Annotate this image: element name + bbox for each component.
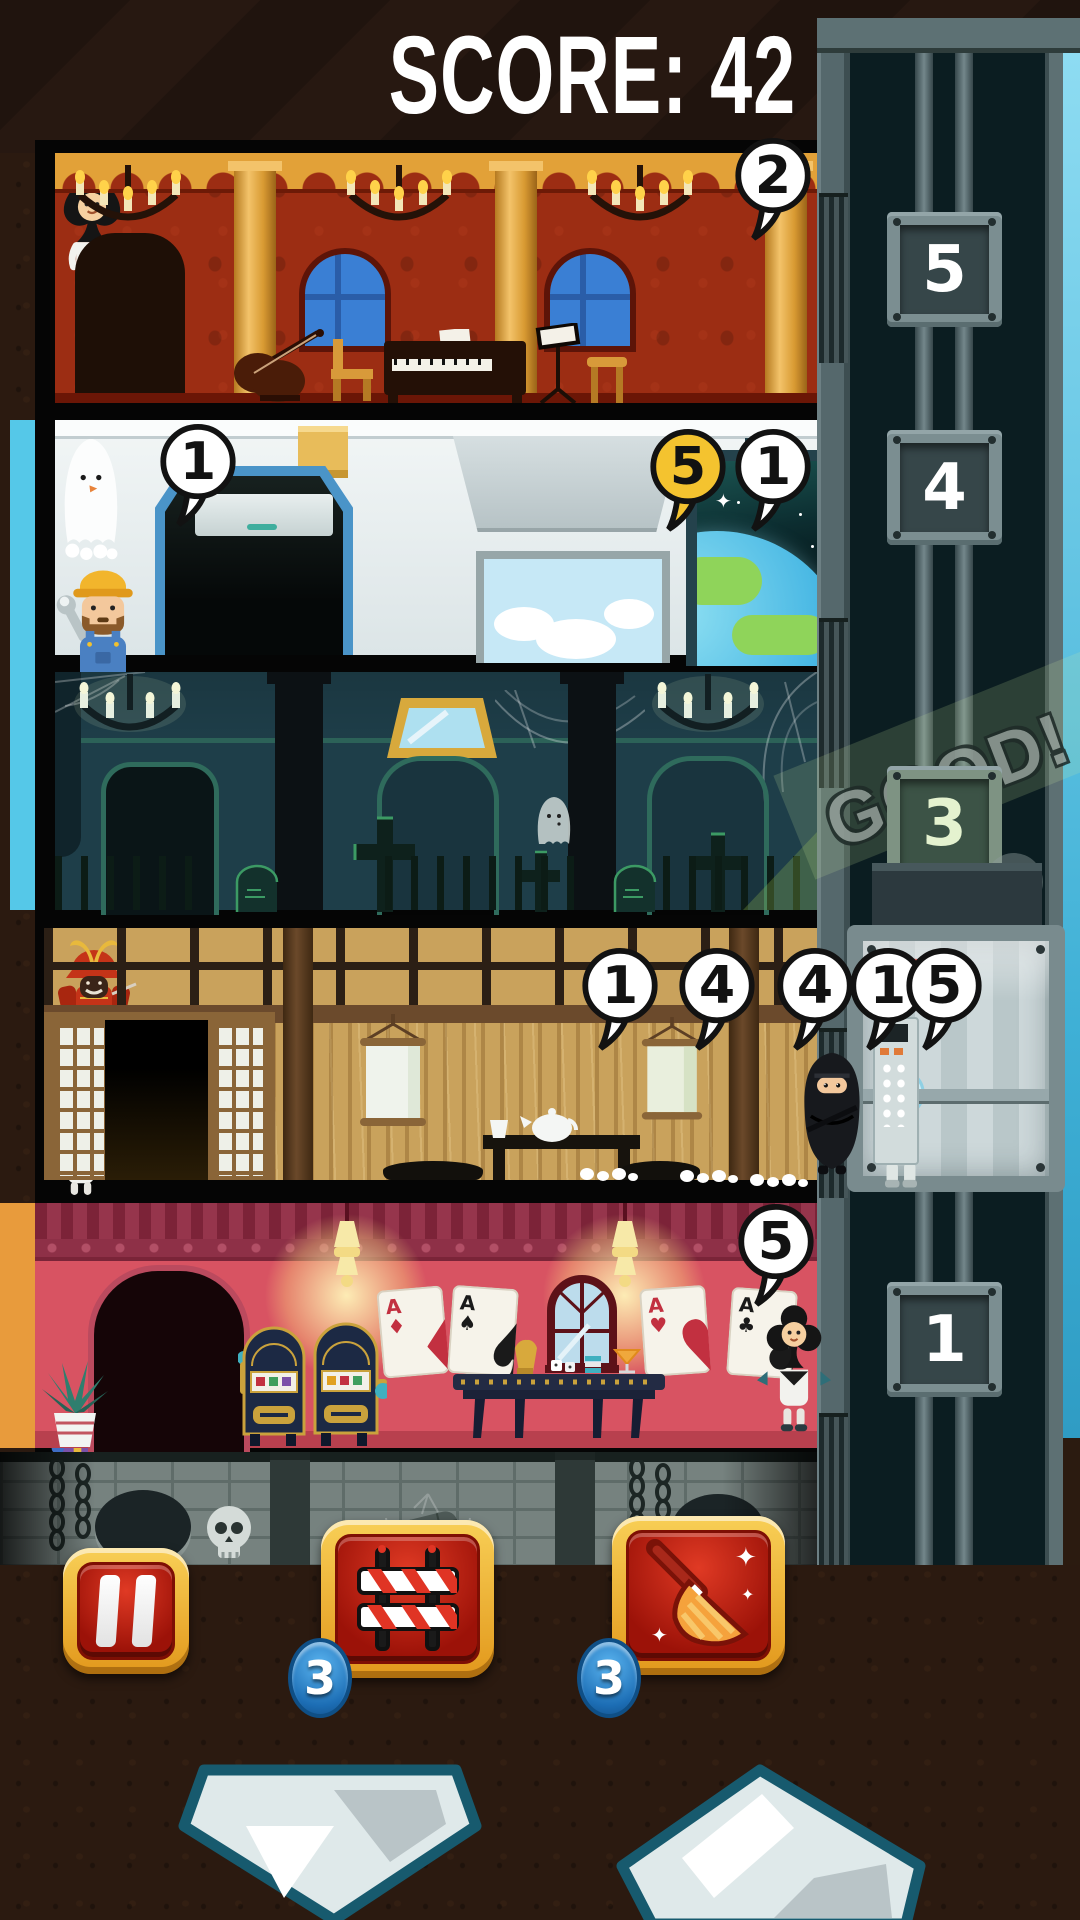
dust-puff	[680, 1170, 694, 1182]
svg-text:✦: ✦	[735, 1542, 757, 1572]
floor-music-room: 2	[55, 153, 817, 403]
teapot-icon	[518, 1104, 580, 1142]
svg-text:✦: ✦	[651, 1625, 668, 1647]
svg-text:♥: ♥	[649, 1313, 669, 1338]
chandelier-icon	[648, 674, 768, 764]
chair-icon	[325, 339, 379, 401]
fence	[55, 856, 205, 910]
score-text: SCORE: 42	[283, 13, 796, 140]
svg-text:1: 1	[180, 432, 216, 492]
character-ghost	[55, 420, 127, 560]
floor-plate-4: 4	[887, 430, 1002, 545]
floor-haunted-hall	[55, 672, 817, 910]
porthole-window	[476, 551, 670, 663]
svg-text:4: 4	[699, 956, 735, 1016]
sky-strip	[10, 420, 35, 910]
sunset-strip	[0, 1203, 35, 1448]
sliding-doorway	[44, 1012, 275, 1180]
shaft-right-pillar	[1045, 18, 1063, 1565]
patience-bubble: 2	[731, 137, 815, 245]
broom-powerup-button[interactable]: ✦ ✦ ✦	[612, 1516, 785, 1675]
mirror	[387, 698, 497, 758]
character-ninja	[795, 1040, 869, 1180]
patience-bubble: 4	[675, 947, 759, 1055]
barrier-icon	[353, 1543, 463, 1655]
floor-tatami-room: 1 4	[44, 928, 817, 1180]
hanging-scroll	[358, 1014, 428, 1132]
piano-icon	[380, 329, 532, 403]
elevator-up-button[interactable]	[622, 1766, 920, 1920]
patience-bubble-gold: 5	[646, 428, 730, 536]
barrier-powerup-button[interactable]	[321, 1520, 494, 1678]
svg-text:♠: ♠	[458, 1310, 478, 1335]
svg-text:1: 1	[870, 956, 906, 1016]
teacup-icon	[488, 1118, 510, 1140]
patience-bubble: 1	[731, 428, 815, 536]
playing-card-diamond: A ♦ ♦	[376, 1285, 449, 1378]
score-value: 42	[711, 14, 797, 137]
dust-puff	[580, 1168, 594, 1180]
gravestone-icon	[233, 864, 281, 912]
doorway	[88, 1265, 250, 1454]
patience-bubble: 5	[734, 1203, 818, 1311]
svg-text:5: 5	[670, 437, 706, 497]
elevator-shaft: GOOD! 5 4 3 1	[817, 18, 1080, 1565]
chandelier-icon	[580, 165, 700, 251]
floor-spaceship: ✦ ✦ 1	[55, 420, 817, 655]
patience-bubble: 4	[773, 947, 857, 1055]
chandelier-icon	[70, 674, 190, 764]
slot-machine	[238, 1316, 308, 1448]
cello-icon	[220, 321, 330, 403]
pause-icon	[77, 1562, 175, 1660]
svg-text:1: 1	[602, 956, 638, 1016]
broom-icon: ✦ ✦ ✦	[641, 1538, 757, 1654]
patience-bubble: 5	[902, 947, 986, 1055]
elevator-up-icon	[622, 1766, 920, 1920]
patience-bubble: 1	[578, 947, 662, 1055]
slot-machine	[311, 1313, 387, 1448]
chandelier-icon	[339, 165, 459, 251]
lamp-icon	[328, 1203, 366, 1289]
svg-text:2: 2	[755, 146, 791, 206]
column	[275, 672, 323, 910]
score-label: SCORE:	[389, 14, 689, 137]
svg-text:4: 4	[797, 956, 833, 1016]
mini-ghost	[533, 794, 575, 846]
game-screen: SCORE: 42	[0, 0, 1080, 1920]
gravestone-icon	[611, 864, 659, 912]
floor-casino: A ♦ ♦ A ♠ ♠ A ♥ ♥ A	[35, 1203, 817, 1448]
svg-text:♥: ♥	[674, 1301, 711, 1377]
svg-text:♣: ♣	[737, 1312, 757, 1337]
svg-text:✦: ✦	[741, 1587, 754, 1604]
fence	[385, 856, 575, 910]
elevator-down-button[interactable]	[184, 1762, 476, 1920]
patience-bubble: 1	[156, 423, 240, 531]
potted-plant	[38, 1355, 112, 1448]
svg-text:♦: ♦	[412, 1301, 450, 1378]
wood-pillar	[283, 928, 313, 1180]
doorway	[75, 233, 185, 403]
stool-icon	[583, 351, 631, 403]
music-stand-icon	[533, 323, 583, 403]
character-club-costume	[757, 1293, 831, 1448]
svg-text:5: 5	[758, 1212, 794, 1272]
svg-text:5: 5	[926, 956, 962, 1016]
elevator-down-icon	[184, 1762, 476, 1920]
column	[568, 672, 616, 910]
floor-plate-1: 1	[887, 1282, 1002, 1397]
pause-button[interactable]	[63, 1548, 189, 1674]
dust-puff	[750, 1174, 764, 1186]
skull-icon	[200, 1504, 258, 1564]
bar-table	[453, 1338, 665, 1438]
svg-text:1: 1	[755, 437, 791, 497]
elevator-machinery	[872, 863, 1042, 927]
svg-text:♦: ♦	[386, 1314, 406, 1339]
floor-plate-5: 5	[887, 212, 1002, 327]
